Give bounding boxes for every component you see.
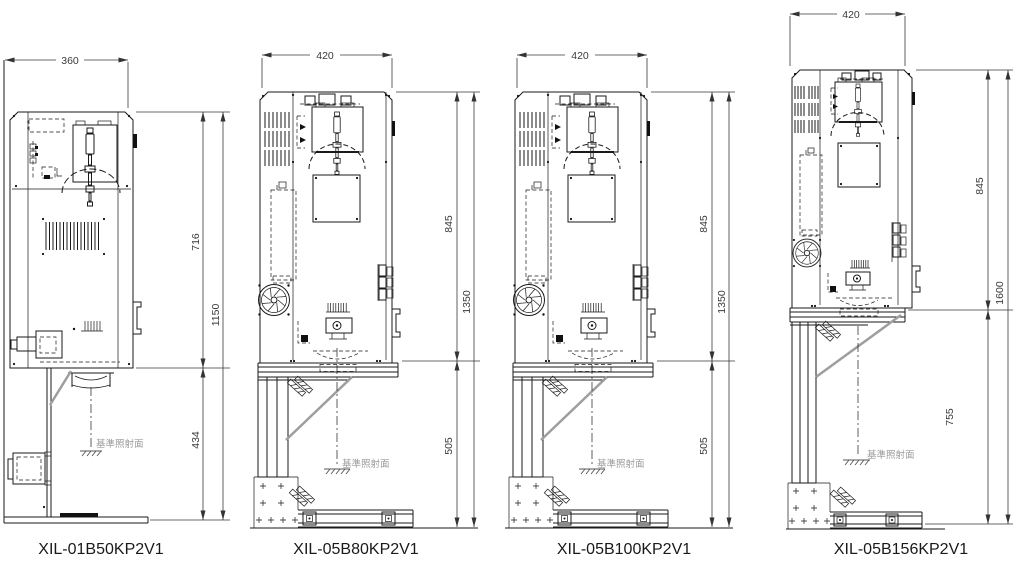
dim-lower-label: 505 [698, 437, 710, 455]
dim-total-label: 1600 [994, 281, 1006, 305]
dim-total-label: 1350 [716, 290, 728, 314]
unit-3-drawing: 420 845 1350 505 基準照射面 [505, 50, 735, 528]
dim-width-label: 420 [571, 50, 589, 62]
dim-upper-label: 716 [190, 233, 202, 251]
unit-2-drawing: 420 845 1350 505 基準照射面 [250, 50, 480, 528]
model-label: XIL-05B80KP2V1 [293, 541, 419, 558]
reference-plane-label: 基準照射面 [597, 458, 645, 470]
technical-drawing-page: 360 716 1150 434 基準照射面 420 845 1350 505 … [0, 0, 1024, 568]
reference-plane-label: 基準照射面 [867, 449, 915, 461]
dim-upper-label: 845 [443, 215, 455, 233]
technical-drawing-canvas: 360 716 1150 434 基準照射面 420 845 1350 505 … [0, 0, 1024, 568]
model-captions: XIL-01B50KP2V1 XIL-05B80KP2V1 XIL-05B100… [38, 541, 968, 558]
unit-1-drawing: 360 716 1150 434 基準照射面 [4, 55, 230, 523]
model-label: XIL-01B50KP2V1 [38, 541, 164, 558]
reference-plane-label: 基準照射面 [96, 438, 144, 450]
reference-plane-label: 基準照射面 [342, 458, 390, 470]
dim-total-label: 1150 [210, 304, 222, 327]
dim-width-label: 360 [61, 55, 79, 67]
model-label: XIL-05B156KP2V1 [834, 541, 968, 558]
dim-upper-label: 845 [698, 215, 710, 233]
dim-upper-label: 845 [974, 177, 986, 195]
unit-4-drawing: 420 845 1600 755 基準照射面 [786, 9, 1013, 529]
dim-total-label: 1350 [461, 290, 473, 314]
dim-lower-label: 434 [190, 431, 202, 449]
model-label: XIL-05B100KP2V1 [557, 541, 691, 558]
dim-lower-label: 755 [944, 408, 956, 426]
dim-lower-label: 505 [443, 437, 455, 455]
dim-width-label: 420 [842, 9, 860, 21]
dim-width-label: 420 [316, 50, 334, 62]
